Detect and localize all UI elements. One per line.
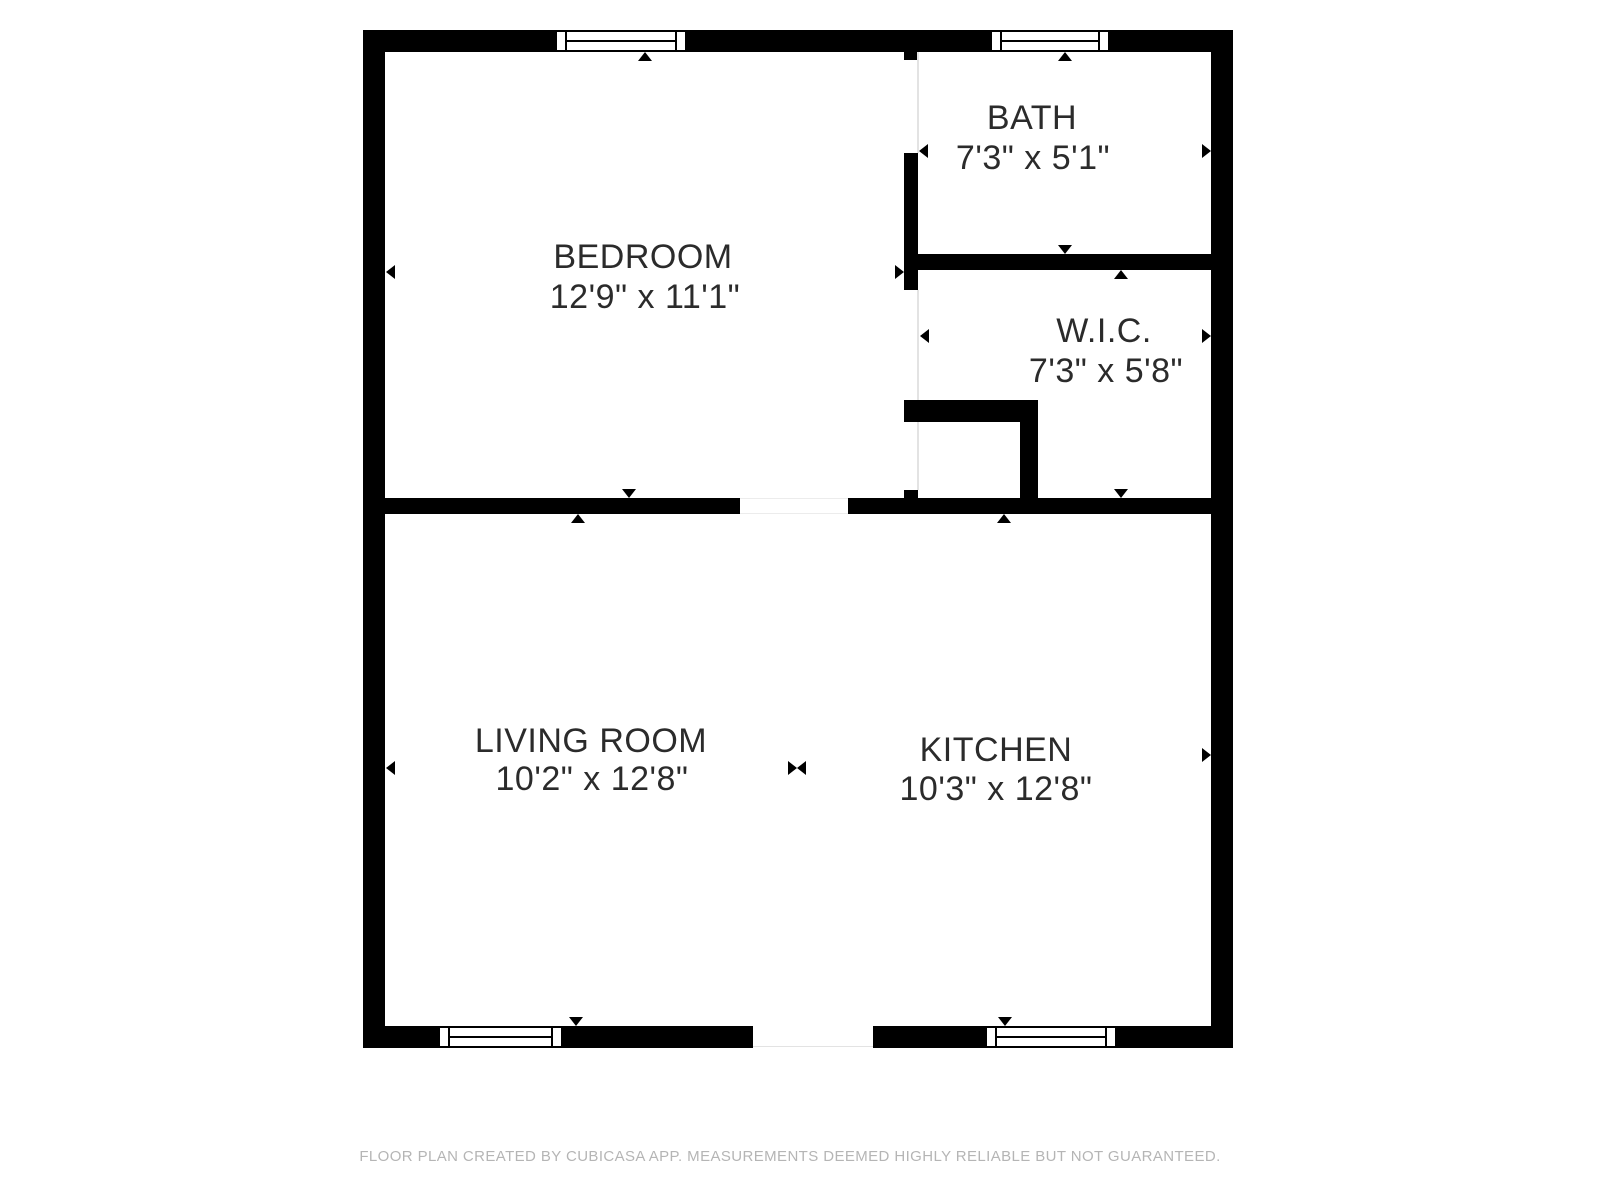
window-end-cap	[551, 1028, 561, 1046]
room-dims-kitchen: 10'3" x 12'8"	[796, 770, 1196, 808]
measure-arrow-down-icon	[569, 1017, 583, 1026]
window-end-cap	[440, 1028, 450, 1046]
room-dims-living: 10'2" x 12'8"	[392, 760, 792, 798]
window-end-cap	[987, 1028, 997, 1046]
window-end-cap	[557, 32, 567, 50]
bedroom-window-icon	[555, 30, 687, 52]
measure-arrow-up-icon	[638, 52, 652, 61]
measure-arrow-left-icon	[386, 265, 395, 279]
room-name-wic: W.I.C.	[904, 312, 1304, 350]
room-name-kitchen: KITCHEN	[796, 731, 1196, 769]
measure-arrow-down-icon	[622, 489, 636, 498]
window-pane-line	[567, 40, 675, 42]
measure-arrow-up-icon	[997, 514, 1011, 523]
window-pane-line	[450, 1036, 551, 1038]
room-name-bath: BATH	[832, 99, 1232, 137]
wall-bedroom-right-stub-top	[904, 52, 918, 60]
floor-plan: BEDROOM 12'9" x 11'1" BATH 7'3" x 5'1" W…	[0, 0, 1600, 1200]
room-dims-wic: 7'3" x 5'8"	[906, 352, 1306, 390]
room-name-living: LIVING ROOM	[391, 722, 791, 760]
wall-bedroom-right-stub-bottom	[904, 490, 918, 514]
measure-arrow-down-icon	[1114, 489, 1128, 498]
wall-closet-nook-horizontal	[904, 400, 1038, 422]
window-end-cap	[992, 32, 1002, 50]
bath-window-icon	[990, 30, 1110, 52]
wall-middle-left	[363, 498, 740, 514]
measure-arrow-right-icon	[895, 265, 904, 279]
bedroom-living-doorway	[740, 498, 848, 514]
footer-disclaimer: FLOOR PLAN CREATED BY CUBICASA APP. MEAS…	[340, 1148, 1240, 1166]
living-room-window-icon	[438, 1026, 563, 1048]
measure-arrow-right-icon	[1202, 748, 1211, 762]
window-end-cap	[675, 32, 685, 50]
measure-arrow-down-icon	[1058, 245, 1072, 254]
measure-arrow-up-icon	[1114, 270, 1128, 279]
bottom-wall-doorway	[753, 1046, 873, 1047]
room-dims-bedroom: 12'9" x 11'1"	[445, 278, 845, 316]
wall-bath-bottom	[904, 254, 1233, 270]
wall-closet-nook-vertical	[1020, 422, 1038, 514]
measure-arrow-down-icon	[998, 1017, 1012, 1026]
measure-arrow-up-icon	[1058, 52, 1072, 61]
room-name-bedroom: BEDROOM	[443, 238, 843, 276]
window-end-cap	[1105, 1028, 1115, 1046]
room-dims-bath: 7'3" x 5'1"	[833, 139, 1233, 177]
window-pane-line	[997, 1036, 1105, 1038]
measure-arrow-up-icon	[571, 514, 585, 523]
window-pane-line	[1002, 40, 1098, 42]
nook-opening	[917, 422, 919, 490]
wall-left	[363, 30, 385, 1048]
kitchen-window-icon	[985, 1026, 1117, 1048]
wall-right	[1211, 30, 1233, 1048]
window-end-cap	[1098, 32, 1108, 50]
